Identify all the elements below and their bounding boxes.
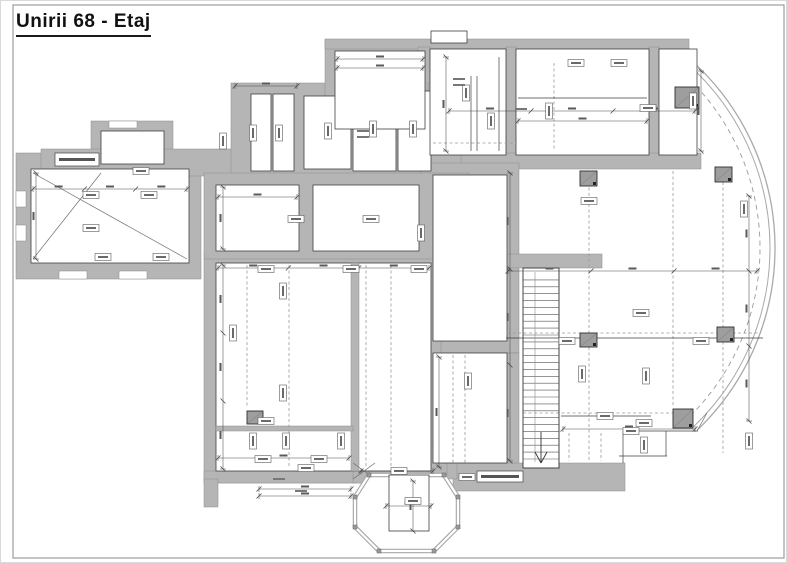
dimension-tag-text <box>327 126 329 136</box>
room <box>433 175 507 341</box>
wall-segment <box>507 353 519 471</box>
bay-window-joint <box>353 495 357 499</box>
dimension-text-smudge <box>106 186 114 188</box>
column-marker <box>593 182 596 185</box>
dimension-text-smudge <box>220 214 222 222</box>
dimension-text-smudge <box>55 186 63 188</box>
dimension-tag-text <box>562 340 572 342</box>
window-slit <box>59 271 87 279</box>
dimension-tag-text <box>614 62 624 64</box>
inner-wall <box>351 263 359 471</box>
dimension-text-smudge <box>220 295 222 303</box>
bay-window-joint <box>442 473 446 477</box>
inner-wall <box>216 426 353 431</box>
dimension-tag-text <box>366 218 376 220</box>
dimension-tag-text <box>643 107 653 109</box>
dimension-tag-text <box>414 268 424 270</box>
dimension-tag-text <box>692 96 694 106</box>
dimension-tag-text <box>136 170 146 172</box>
room <box>431 31 467 43</box>
dimension-tag-text <box>696 340 706 342</box>
dimension-tag-text <box>467 376 469 386</box>
dimension-tag-text <box>261 268 271 270</box>
wall-segment <box>506 254 602 268</box>
dimension-tag-text <box>252 436 254 446</box>
column-marker <box>689 424 692 427</box>
dimension-tag-text <box>636 312 646 314</box>
dimension-tag-text <box>420 228 422 238</box>
label-box-text <box>59 158 95 161</box>
dimension-tag-text <box>639 422 649 424</box>
dimension-text-smudge <box>579 118 587 120</box>
dimension-text-smudge <box>746 305 748 313</box>
room <box>335 51 425 129</box>
curved-facade <box>693 62 775 430</box>
micro-text <box>357 130 369 132</box>
dimension-tag-text <box>232 328 234 338</box>
dimension-tag-text <box>98 256 108 258</box>
dimension-text-smudge <box>712 268 720 270</box>
dimension-tag-text <box>252 128 254 138</box>
dimension-tag-text <box>626 430 636 432</box>
dimension-tag-text <box>408 500 418 502</box>
dimension-text-smudge <box>746 380 748 388</box>
micro-text <box>453 78 465 80</box>
dimension-tag-text <box>465 88 467 98</box>
dimension-text-smudge <box>507 409 509 417</box>
dimension-tag-text <box>584 200 594 202</box>
dimension-text-smudge <box>320 265 328 267</box>
dimension-tag-text <box>462 476 472 478</box>
bay-window-joint <box>377 549 381 553</box>
dimension-tag-text <box>581 369 583 379</box>
dimension-tag-text <box>346 268 356 270</box>
dimension-tag-text <box>394 470 404 472</box>
dimension-text-smudge <box>436 408 438 416</box>
dimension-tag-text <box>600 415 610 417</box>
dimension-tag-text <box>412 124 414 134</box>
column-marker <box>593 343 596 346</box>
room <box>433 353 507 463</box>
dimension-text-smudge <box>746 230 748 238</box>
dimension-text-smudge <box>568 108 576 110</box>
window-slit <box>109 121 137 128</box>
window-slit <box>16 225 26 241</box>
column-marker <box>728 178 731 181</box>
dimension-tag-text <box>548 106 550 116</box>
dimension-tag-text <box>490 116 492 126</box>
dimension-text-smudge <box>262 83 270 85</box>
dimension-tag-text <box>144 194 154 196</box>
dimension-tag-text <box>282 388 284 398</box>
dimension-tag-text <box>301 467 311 469</box>
column-marker <box>730 338 733 341</box>
room <box>216 263 431 471</box>
dimension-text-smudge <box>220 363 222 371</box>
dimension-tag-text <box>86 194 96 196</box>
dimension-tag-text <box>278 128 280 138</box>
dimension-text-smudge <box>376 65 384 67</box>
dimension-text-smudge <box>546 268 554 270</box>
dimension-text-smudge <box>301 493 309 495</box>
dimension-text-smudge <box>220 431 222 439</box>
bay-window-joint <box>432 549 436 553</box>
micro-text <box>515 108 527 110</box>
wall-segment <box>506 47 516 157</box>
dimension-text-smudge <box>486 108 494 110</box>
dimension-tag-text <box>340 436 342 446</box>
dimension-tag-text <box>571 62 581 64</box>
dimension-tag-text <box>314 458 324 460</box>
wall-segment <box>204 479 218 507</box>
dimension-tag-text <box>156 256 166 258</box>
dimension-tag-text <box>261 420 271 422</box>
room <box>430 49 506 155</box>
window-slit <box>16 191 26 207</box>
dimension-text-smudge <box>280 455 288 457</box>
micro-text <box>453 84 465 86</box>
dimension-tag-text <box>645 371 647 381</box>
dimension-tag-text <box>643 440 645 450</box>
dimension-tag-text <box>372 124 374 134</box>
dimension-tag-text <box>258 458 268 460</box>
dimension-text-smudge <box>157 186 165 188</box>
bay-window-joint <box>456 525 460 529</box>
dimension-text-smudge <box>376 56 384 58</box>
wall-segment <box>204 471 356 483</box>
dimension-text-smudge <box>443 100 445 108</box>
dimension-tag-text <box>743 204 745 214</box>
dimension-tag-text <box>748 436 750 446</box>
dimension-tag-text <box>222 136 224 146</box>
micro-text <box>295 490 307 492</box>
dimension-text-smudge <box>390 265 398 267</box>
dimension-tag-text <box>282 286 284 296</box>
dimension-tag-text <box>291 218 301 220</box>
dimension-text-smudge <box>33 212 35 220</box>
dimension-text-smudge <box>507 313 509 321</box>
floor-plan <box>1 1 787 563</box>
bay-window-joint <box>456 495 460 499</box>
dimension-text-smudge <box>254 194 262 196</box>
curved-facade <box>690 66 770 427</box>
dimension-tag-text <box>86 227 96 229</box>
room <box>101 131 164 164</box>
dimension-text-smudge <box>507 217 509 225</box>
dimension-text-smudge <box>629 268 637 270</box>
label-box-text <box>481 475 519 478</box>
dimension-text-smudge <box>301 486 309 488</box>
micro-text <box>273 478 285 480</box>
dimension-text-smudge <box>249 265 257 267</box>
micro-text <box>357 136 369 138</box>
window-slit <box>119 271 147 279</box>
dimension-tag-text <box>285 436 287 446</box>
bay-window-joint <box>367 473 371 477</box>
bay-window-joint <box>353 525 357 529</box>
drawing-page: Unirii 68 - Etaj <box>0 0 787 563</box>
